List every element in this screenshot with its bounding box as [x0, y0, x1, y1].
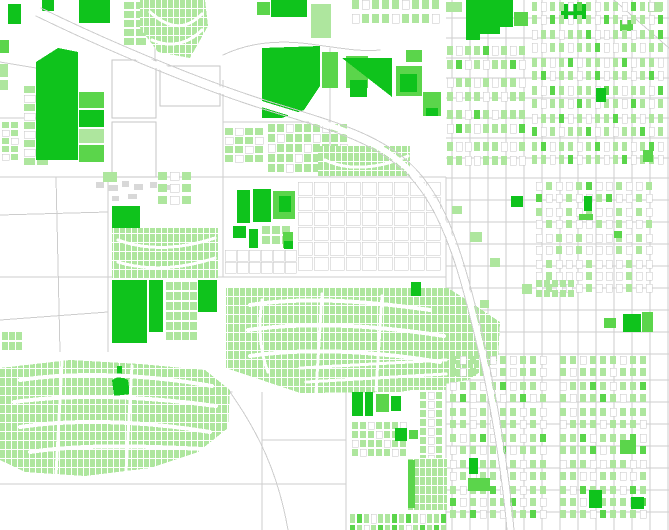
map-svg — [0, 0, 669, 530]
parcel-map-viewport — [0, 0, 669, 530]
